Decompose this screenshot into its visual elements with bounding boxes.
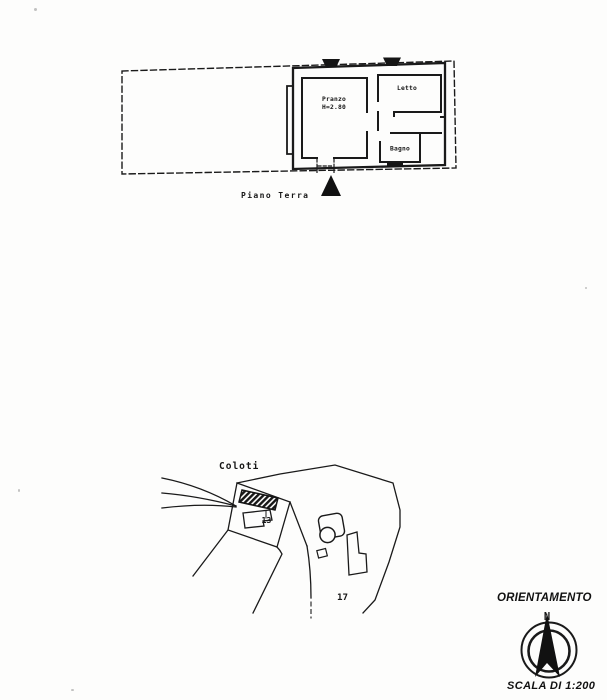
floor-plan-drawing: Pranzo H=2.80 Letto Bagno Piano Terra	[110, 55, 460, 205]
scale-label: SCALA DI 1:200	[507, 680, 595, 692]
l-shaped-building-outline	[347, 532, 367, 575]
locality-label: Coloti	[219, 461, 259, 472]
compass-rose-icon: N	[495, 592, 607, 692]
road-edge-lower	[162, 505, 236, 508]
small-square-structure	[317, 549, 328, 558]
room-bagno-label: Bagno	[390, 146, 410, 153]
scan-speck	[585, 287, 587, 289]
parcel-17-boundary	[237, 465, 400, 613]
road-edge-upper	[162, 478, 236, 506]
scan-speck	[18, 489, 20, 492]
subject-building-hatched	[239, 490, 278, 510]
room-pranzo-height-note: H=2.80	[322, 104, 346, 111]
round-structure-circle	[320, 527, 335, 542]
boundary-line-lower-left	[253, 547, 282, 613]
site-plan-drawing: Coloti 13 17	[160, 450, 410, 650]
dashed-boundary	[122, 61, 456, 174]
orientation-block: ORIENTAMENTO N	[495, 592, 607, 692]
scan-speck	[71, 689, 74, 691]
boundary-line-central	[307, 546, 311, 598]
anteroom-partition	[420, 117, 445, 133]
boundary-line-left	[193, 530, 228, 576]
scanned-cadastral-sheet: Pranzo H=2.80 Letto Bagno Piano Terra	[0, 0, 607, 700]
parcel-13-boundary	[228, 483, 290, 547]
letto-room-walls	[378, 75, 441, 116]
room-letto-label: Letto	[397, 85, 417, 92]
parcel-13-label: 13	[262, 515, 272, 525]
boundary-line-inner	[290, 502, 307, 546]
pranzo-room-walls	[302, 78, 367, 158]
room-pranzo-label: Pranzo	[322, 96, 346, 103]
entrance-triangle-icon	[321, 175, 341, 196]
window-sill-mark	[387, 163, 403, 168]
scan-speck	[34, 8, 37, 11]
floor-caption: Piano Terra	[241, 190, 309, 200]
parcel-17-label: 17	[337, 592, 348, 603]
